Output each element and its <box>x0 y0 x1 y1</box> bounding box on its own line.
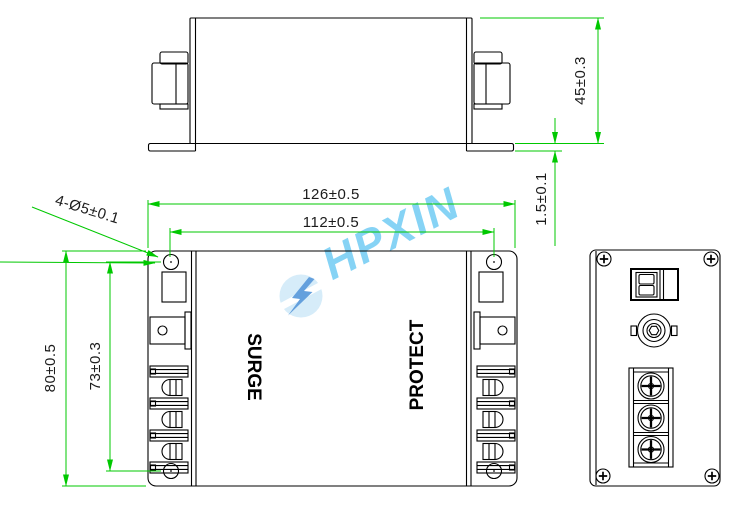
din-clip-right <box>474 52 510 109</box>
screw-icon <box>705 469 719 483</box>
front-view: SURGE PROTECT <box>148 251 517 486</box>
technical-drawing-page: HPXIN 45±0.3 1.5±0.1 <box>0 0 746 509</box>
top-view <box>149 18 514 151</box>
device-label-surge: SURGE <box>243 333 264 401</box>
device-label-protect: PROTECT <box>407 319 428 410</box>
terminal-screw-icon <box>638 373 664 399</box>
dimension-overall-width-label: 126±0.5 <box>302 186 360 203</box>
dimension-overall-height-label: 80±0.5 <box>42 344 59 393</box>
left-flange-connectors <box>150 272 191 473</box>
lightning-bolt-icon <box>274 275 328 318</box>
dimension-depth: 45±0.3 <box>480 18 604 144</box>
dimension-flange-thickness: 1.5±0.1 <box>515 118 562 246</box>
callout-mounting-holes-label: 4-Ø5±0.1 <box>53 192 122 228</box>
screw-icon <box>704 252 718 266</box>
dimension-depth-label: 45±0.3 <box>572 56 589 105</box>
dimension-flange-thickness-label: 1.5±0.1 <box>533 172 550 225</box>
dimension-hole-spacing-horizontal-label: 112±0.5 <box>303 214 360 231</box>
din-clip-left <box>152 52 188 109</box>
right-flange-connectors <box>474 272 515 473</box>
coax-connector <box>631 314 677 347</box>
terminal-block-2pos <box>631 269 678 300</box>
callout-mounting-holes: 4-Ø5±0.1 <box>0 192 158 263</box>
terminal-block-3pos <box>629 368 673 467</box>
technical-drawing-canvas: HPXIN 45±0.3 1.5±0.1 <box>0 0 746 509</box>
screw-icon <box>597 252 611 266</box>
screw-icon <box>596 469 610 483</box>
dimension-hole-spacing-vertical-label: 73±0.3 <box>87 342 104 391</box>
side-view <box>590 250 720 486</box>
terminal-screw-icon <box>638 405 664 431</box>
mounting-hole-top-left <box>164 255 179 270</box>
terminal-screw-icon <box>638 437 664 463</box>
